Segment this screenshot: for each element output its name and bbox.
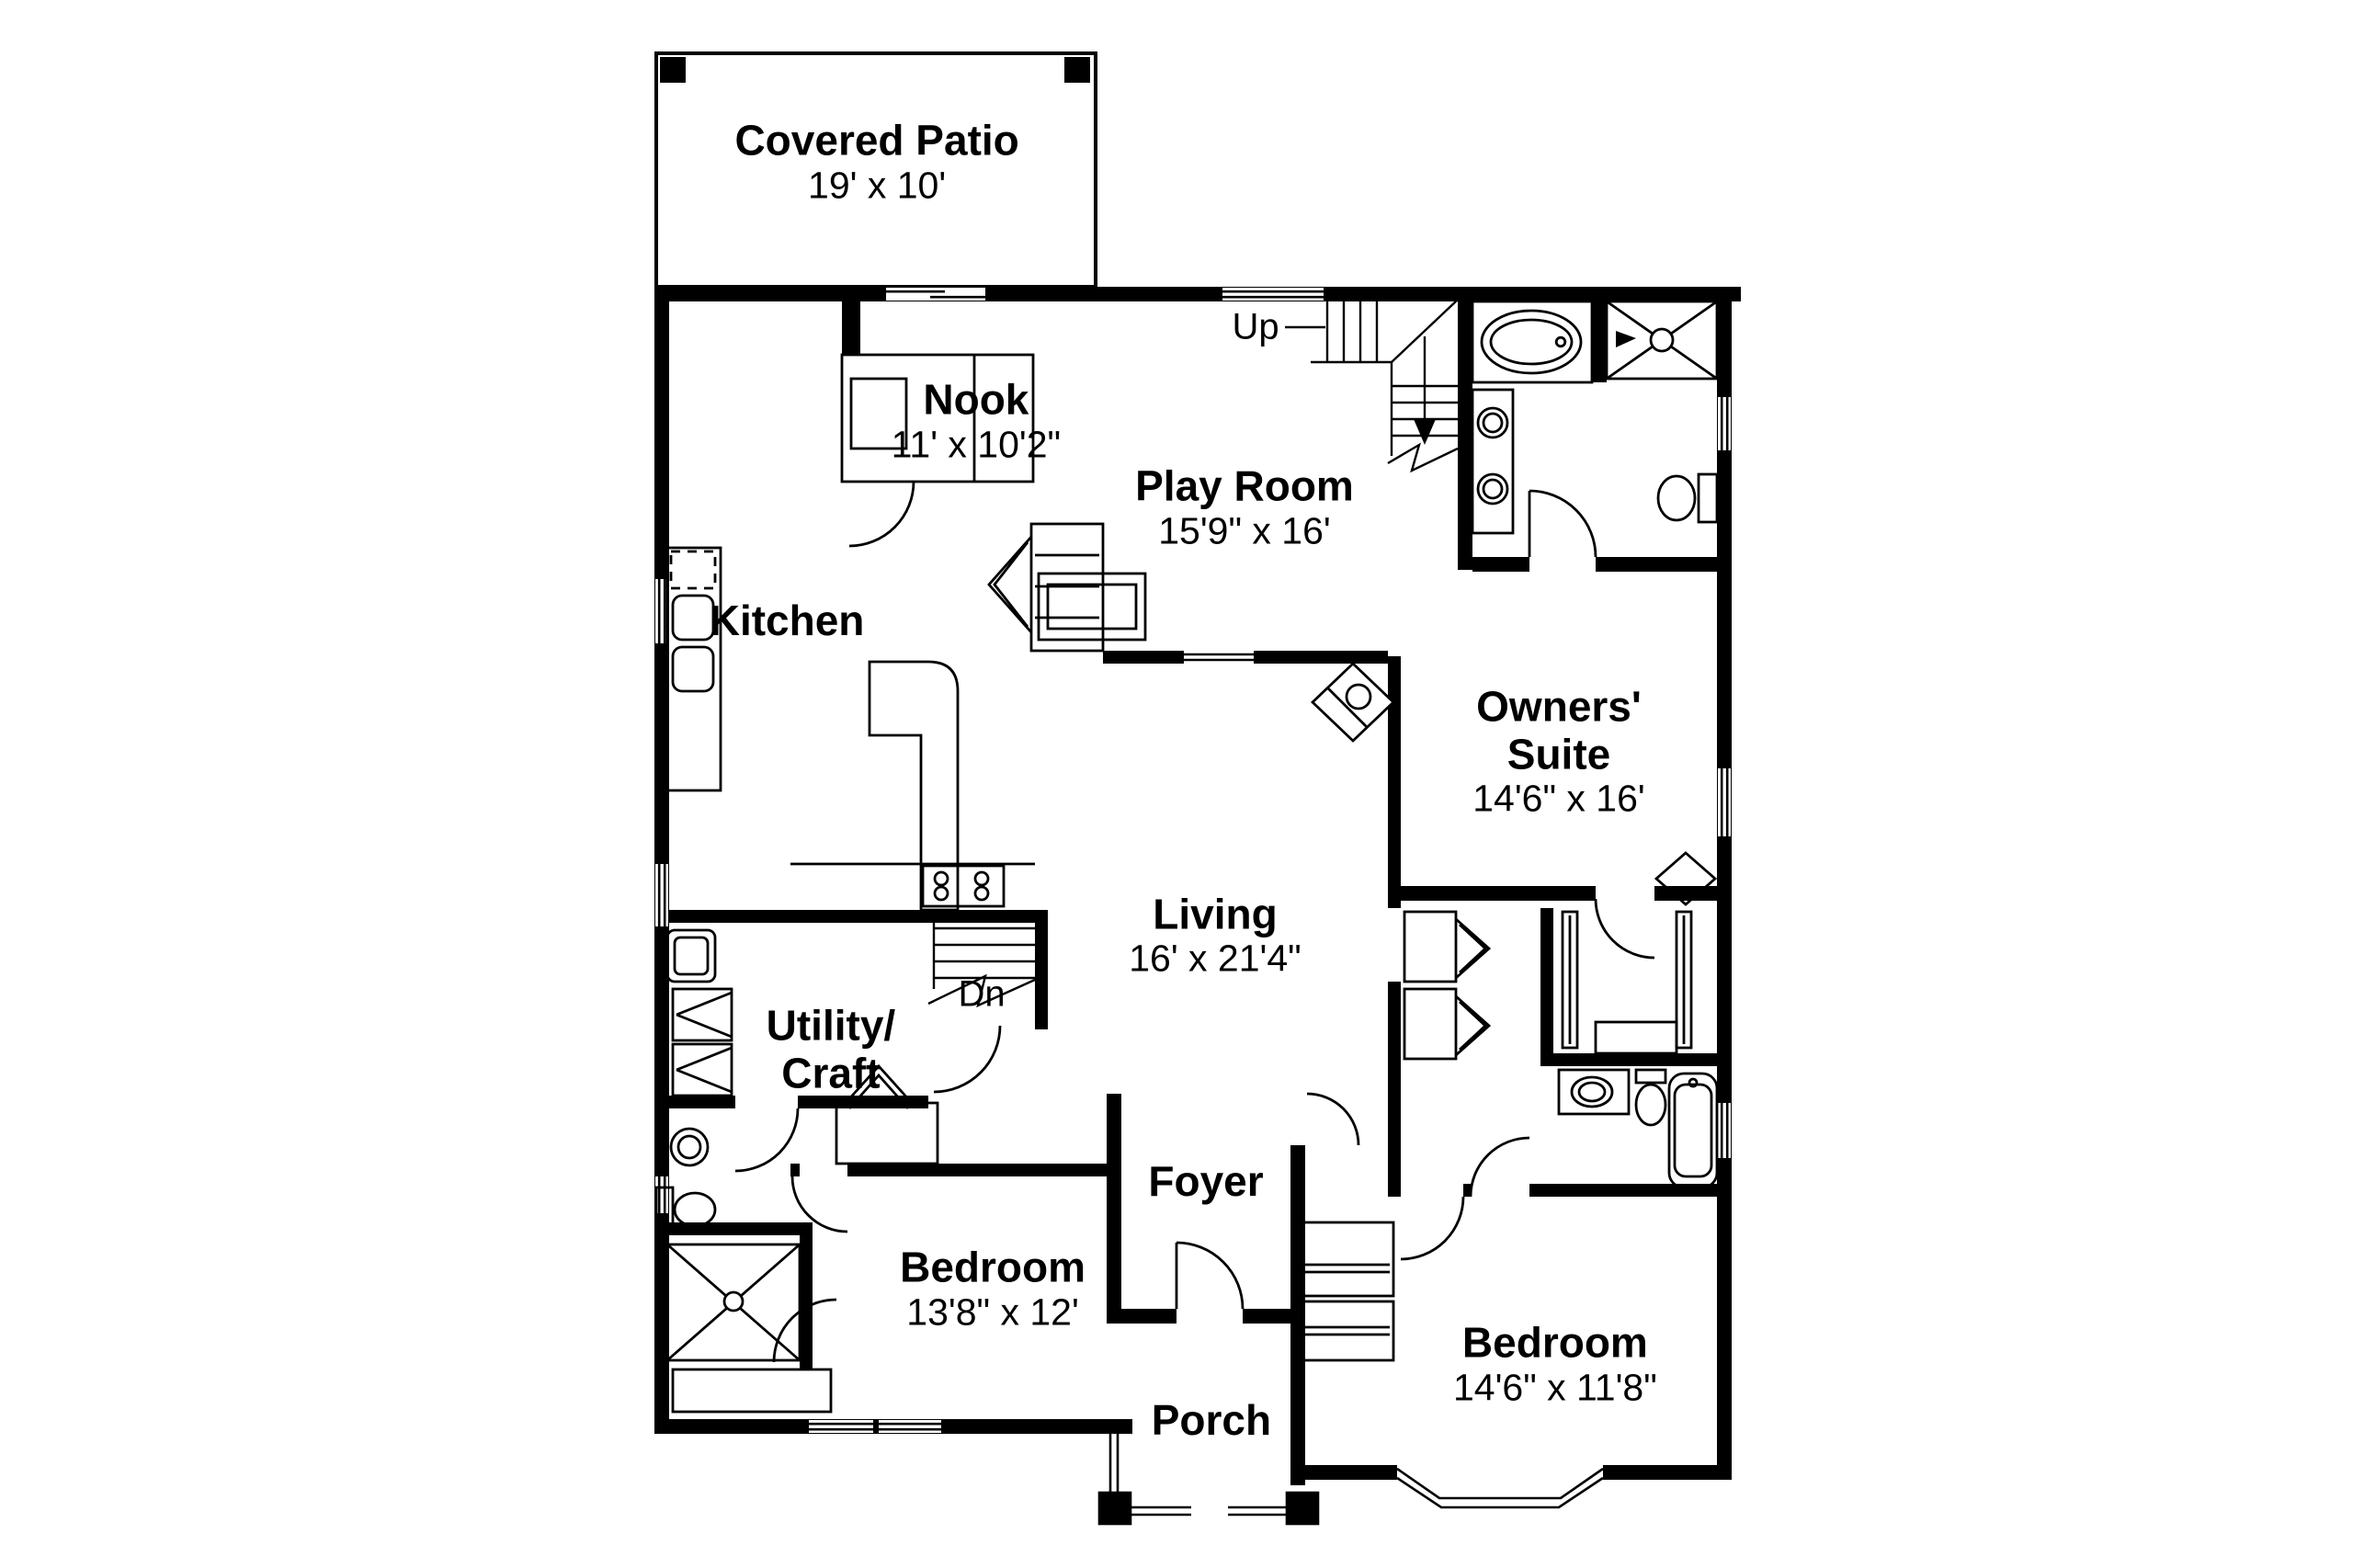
room-name: Covered Patio bbox=[734, 117, 1018, 165]
room-label-nook: Nook 11' x 10'2" bbox=[892, 376, 1061, 465]
room-dims: 13'8" x 12' bbox=[900, 1291, 1086, 1334]
room-name: Play Room bbox=[1135, 462, 1354, 510]
room-label-living: Living 16' x 21'4" bbox=[1129, 891, 1302, 980]
room-name: Foyer bbox=[1148, 1158, 1263, 1206]
stairs-down-label: Dn bbox=[958, 974, 1005, 1016]
room-label-utility-craft: Utility/ Craft bbox=[767, 1002, 896, 1096]
room-name: Kitchen bbox=[710, 597, 865, 645]
room-label-bedroom-side: Bedroom 14'6" x 11'8" bbox=[1453, 1319, 1657, 1408]
stairs-up-label: Up bbox=[1232, 307, 1279, 348]
room-labels: Covered Patio 19' x 10' Nook 11' x 10'2"… bbox=[0, 0, 2353, 1568]
floor-plan: Covered Patio 19' x 10' Nook 11' x 10'2"… bbox=[0, 0, 2353, 1568]
room-dims: 11' x 10'2" bbox=[892, 424, 1061, 466]
room-name: Utility/ bbox=[767, 1002, 896, 1050]
room-dims: 15'9" x 16' bbox=[1135, 510, 1354, 552]
room-label-porch: Porch bbox=[1152, 1397, 1271, 1445]
room-name: Bedroom bbox=[1453, 1319, 1657, 1367]
room-name: Living bbox=[1129, 891, 1302, 938]
room-label-owners-suite: Owners' Suite 14'6" x 16' bbox=[1421, 684, 1697, 821]
room-name: Nook bbox=[892, 376, 1061, 424]
room-dims: 14'6" x 16' bbox=[1421, 778, 1697, 821]
room-name: Bedroom bbox=[900, 1244, 1086, 1291]
room-name: Owners' Suite bbox=[1421, 684, 1697, 778]
room-dims: 16' x 21'4" bbox=[1129, 938, 1302, 981]
room-label-kitchen: Kitchen bbox=[710, 597, 865, 645]
room-label-covered-patio: Covered Patio 19' x 10' bbox=[734, 117, 1018, 206]
room-label-play-room: Play Room 15'9" x 16' bbox=[1135, 462, 1354, 551]
room-label-foyer: Foyer bbox=[1148, 1158, 1263, 1206]
room-dims: 19' x 10' bbox=[734, 165, 1018, 207]
room-dims: 14'6" x 11'8" bbox=[1453, 1367, 1657, 1409]
room-name: Porch bbox=[1152, 1397, 1271, 1445]
room-name: Craft bbox=[767, 1050, 896, 1097]
room-label-bedroom-front: Bedroom 13'8" x 12' bbox=[900, 1244, 1086, 1333]
